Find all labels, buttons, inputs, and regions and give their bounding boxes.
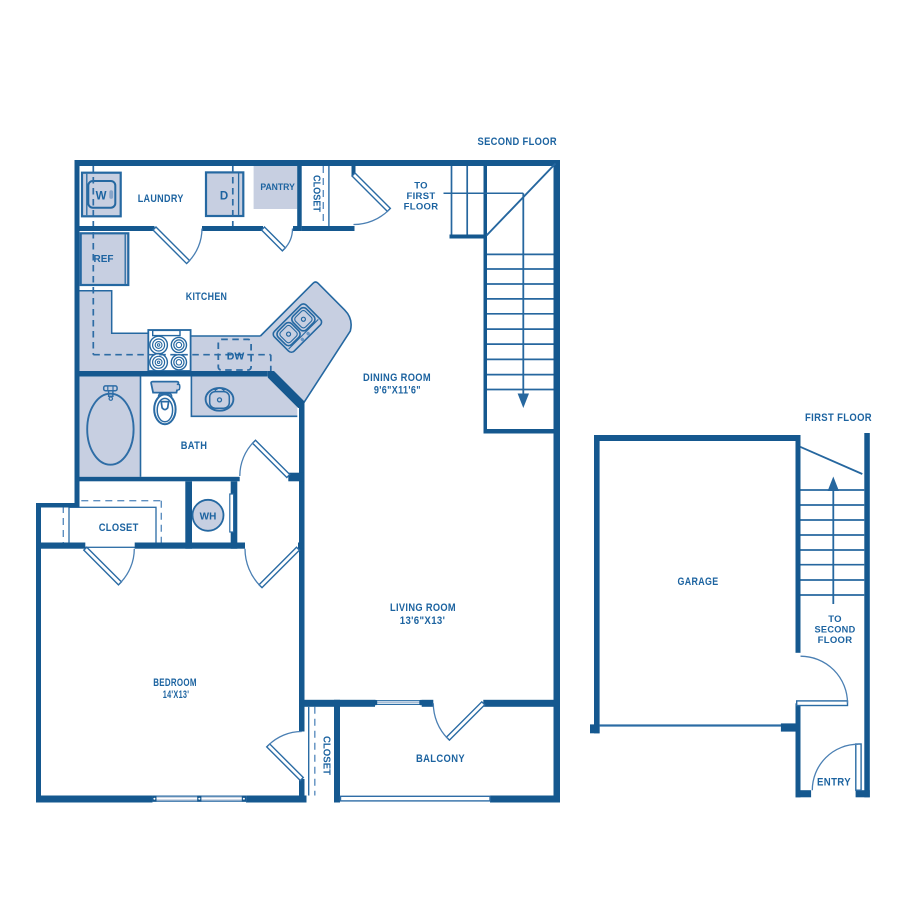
svg-text:LIVING ROOM: LIVING ROOM bbox=[390, 602, 456, 614]
svg-text:DINING ROOM: DINING ROOM bbox=[363, 372, 431, 384]
svg-text:FLOOR: FLOOR bbox=[404, 201, 439, 212]
svg-text:KITCHEN: KITCHEN bbox=[186, 291, 228, 303]
svg-text:9'6"X11'6": 9'6"X11'6" bbox=[374, 385, 421, 397]
svg-text:FIRST FLOOR: FIRST FLOOR bbox=[805, 412, 872, 424]
svg-text:PANTRY: PANTRY bbox=[260, 182, 295, 192]
svg-text:LAUNDRY: LAUNDRY bbox=[138, 193, 184, 205]
svg-text:BATH: BATH bbox=[181, 440, 208, 452]
svg-text:DW: DW bbox=[227, 351, 245, 363]
svg-text:ENTRY: ENTRY bbox=[817, 777, 851, 789]
svg-text:SECOND FLOOR: SECOND FLOOR bbox=[478, 136, 558, 148]
svg-text:CLOSET: CLOSET bbox=[321, 736, 332, 775]
svg-text:CLOSET: CLOSET bbox=[99, 522, 139, 534]
svg-text:FLOOR: FLOOR bbox=[818, 635, 853, 646]
svg-text:REF: REF bbox=[94, 254, 114, 265]
svg-text:TO: TO bbox=[414, 180, 428, 191]
svg-text:13'6"X13': 13'6"X13' bbox=[400, 615, 446, 627]
svg-text:CLOSET: CLOSET bbox=[311, 175, 322, 212]
svg-text:BEDROOM: BEDROOM bbox=[153, 677, 197, 689]
svg-text:D: D bbox=[220, 191, 228, 203]
svg-text:14'X13': 14'X13' bbox=[163, 689, 190, 701]
svg-text:TO: TO bbox=[828, 614, 842, 625]
svg-text:GARAGE: GARAGE bbox=[678, 576, 719, 588]
svg-text:W: W bbox=[96, 191, 107, 203]
svg-text:BALCONY: BALCONY bbox=[416, 753, 465, 765]
svg-text:FIRST: FIRST bbox=[407, 191, 436, 202]
svg-text:WH: WH bbox=[200, 511, 217, 522]
svg-text:SECOND: SECOND bbox=[815, 625, 856, 636]
